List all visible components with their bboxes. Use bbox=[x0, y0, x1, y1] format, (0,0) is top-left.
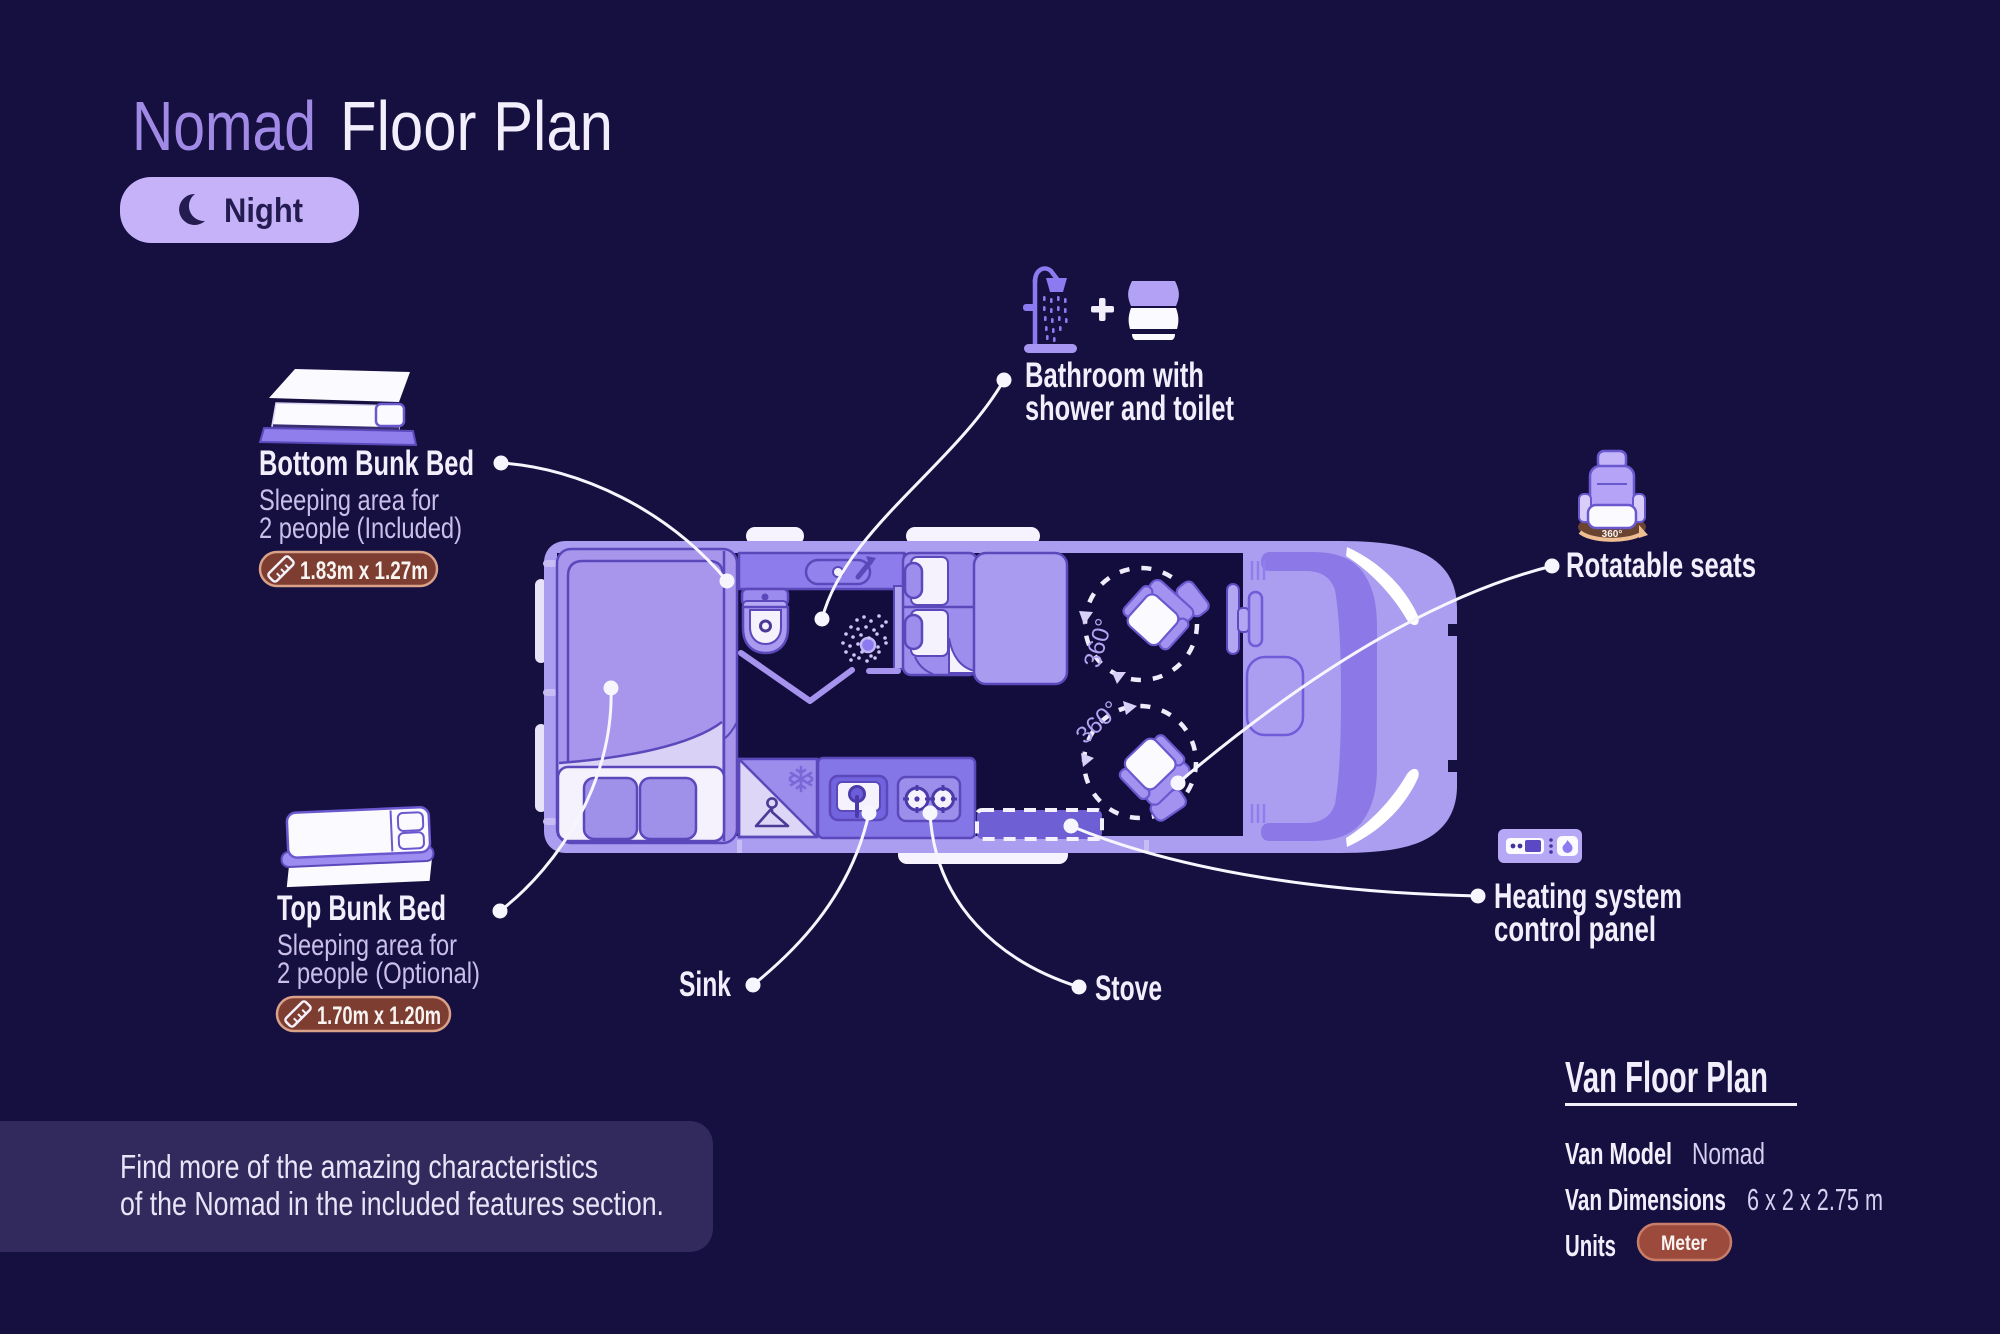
svg-text:Rotatable seats: Rotatable seats bbox=[1566, 546, 1756, 585]
svg-text:Meter: Meter bbox=[1661, 1232, 1707, 1255]
svg-text:Van Floor Plan: Van Floor Plan bbox=[1565, 1053, 1768, 1102]
svg-text:Top Bunk Bed: Top Bunk Bed bbox=[277, 889, 446, 928]
svg-text:Stove: Stove bbox=[1095, 969, 1162, 1008]
svg-text:of the Nomad in the included f: of the Nomad in the included features se… bbox=[120, 1185, 664, 1222]
svg-text:Sink: Sink bbox=[679, 965, 731, 1004]
svg-text:1.70m x 1.20m: 1.70m x 1.20m bbox=[317, 1002, 441, 1030]
svg-text:Van Dimensions: Van Dimensions bbox=[1565, 1182, 1726, 1217]
svg-text:shower and toilet: shower and toilet bbox=[1025, 389, 1234, 428]
svg-text:Units: Units bbox=[1565, 1228, 1616, 1263]
svg-text:6 x 2 x 2.75 m: 6 x 2 x 2.75 m bbox=[1747, 1182, 1883, 1217]
svg-text:1.83m x 1.27m: 1.83m x 1.27m bbox=[300, 557, 428, 585]
svg-text:control panel: control panel bbox=[1494, 910, 1656, 949]
svg-text:Nomad: Nomad bbox=[1692, 1136, 1765, 1171]
svg-text:2 people (Included): 2 people (Included) bbox=[259, 512, 462, 545]
svg-text:Find more of the amazing chara: Find more of the amazing characteristics bbox=[120, 1148, 598, 1185]
svg-text:Night: Night bbox=[224, 192, 303, 230]
svg-text:2 people (Optional): 2 people (Optional) bbox=[277, 957, 480, 990]
svg-text:360°: 360° bbox=[1602, 529, 1623, 540]
svg-text:NomadFloor Plan: NomadFloor Plan bbox=[132, 87, 613, 165]
svg-text:Van Model: Van Model bbox=[1565, 1136, 1672, 1171]
svg-text:Bottom Bunk Bed: Bottom Bunk Bed bbox=[259, 444, 474, 483]
